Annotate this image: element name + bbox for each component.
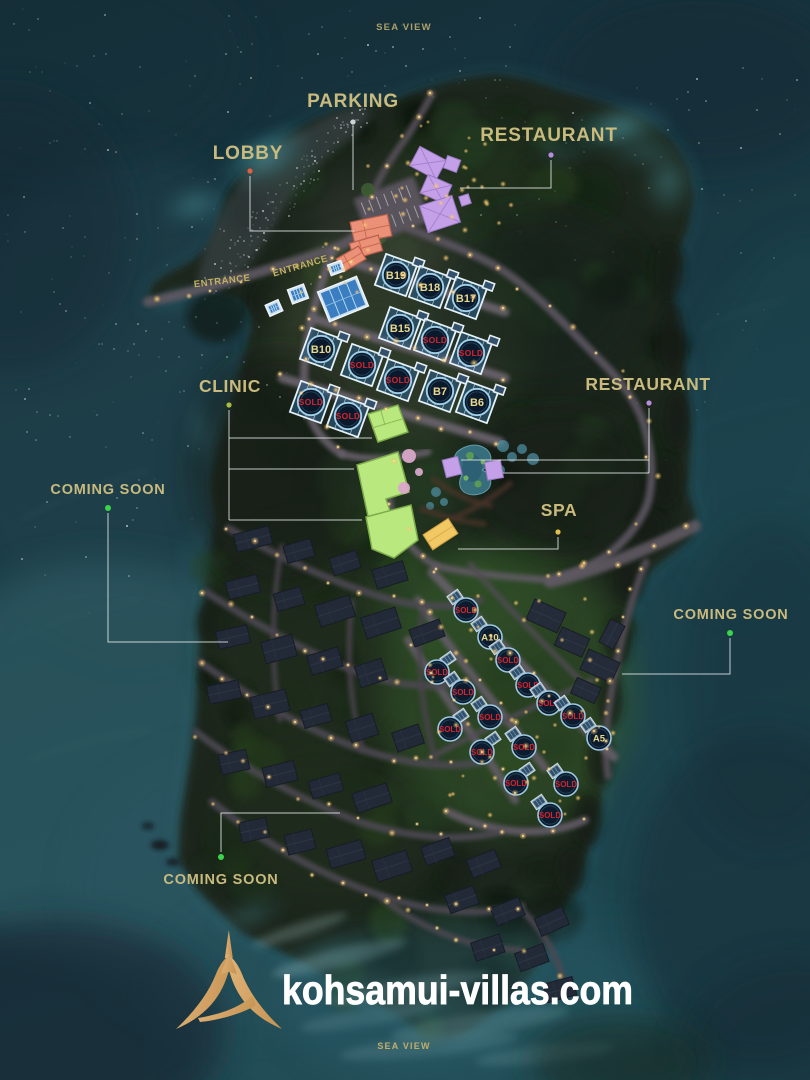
svg-text:SEA VIEW: SEA VIEW: [377, 1041, 430, 1051]
svg-text:SOLD: SOLD: [350, 360, 375, 370]
svg-text:SEA VIEW: SEA VIEW: [376, 22, 432, 33]
svg-text:COMING SOON: COMING SOON: [673, 607, 788, 623]
svg-text:SPA: SPA: [541, 500, 577, 520]
svg-text:B15: B15: [390, 323, 410, 335]
svg-text:COMING SOON: COMING SOON: [50, 482, 165, 498]
svg-text:SOLD: SOLD: [459, 348, 484, 358]
svg-text:SOLD: SOLD: [505, 779, 527, 788]
svg-text:SOLD: SOLD: [479, 713, 501, 722]
svg-text:RESTAURANT: RESTAURANT: [480, 125, 617, 146]
svg-text:PARKING: PARKING: [307, 91, 399, 112]
svg-text:SOLD: SOLD: [555, 780, 577, 789]
svg-text:kohsamui-villas.com: kohsamui-villas.com: [282, 967, 633, 1013]
svg-text:SOLD: SOLD: [497, 656, 519, 665]
svg-text:SOLD: SOLD: [299, 397, 324, 407]
svg-text:SOLD: SOLD: [539, 811, 561, 820]
svg-text:CLINIC: CLINIC: [199, 376, 261, 396]
svg-text:SOLD: SOLD: [423, 335, 448, 345]
svg-text:B10: B10: [311, 344, 331, 356]
svg-text:SOLD: SOLD: [386, 375, 411, 385]
svg-text:B6: B6: [470, 397, 484, 409]
svg-text:LOBBY: LOBBY: [213, 143, 284, 164]
svg-text:SOLD: SOLD: [336, 411, 361, 421]
svg-text:B7: B7: [433, 386, 447, 398]
svg-text:RESTAURANT: RESTAURANT: [585, 374, 710, 394]
svg-text:COMING SOON: COMING SOON: [163, 872, 278, 888]
svg-text:SOLD: SOLD: [452, 688, 474, 697]
